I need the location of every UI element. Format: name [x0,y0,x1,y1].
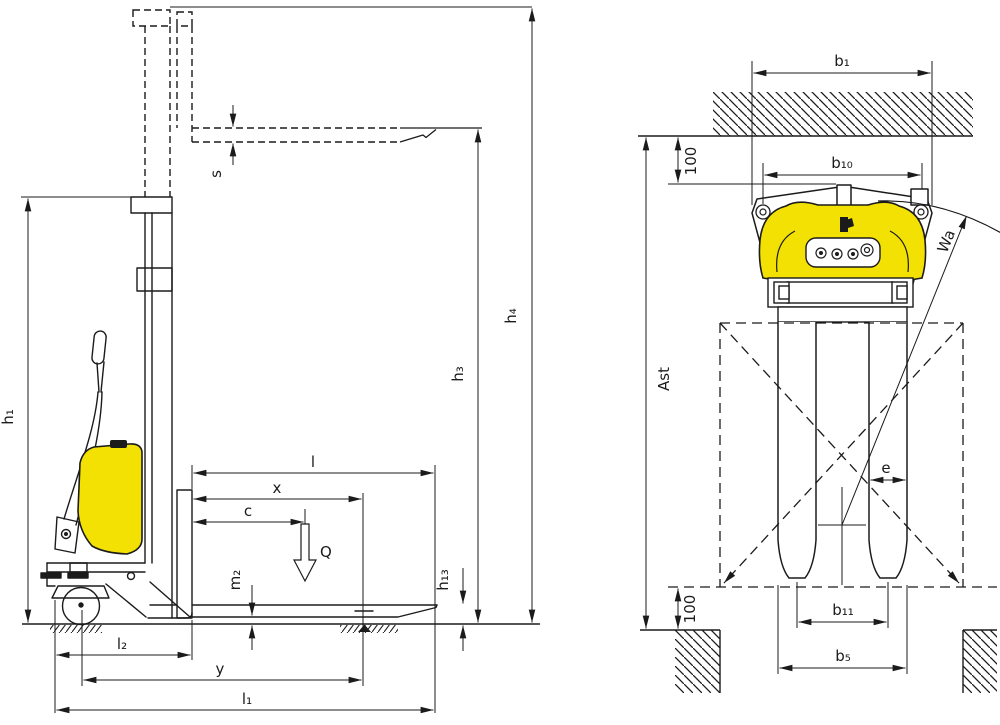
tiller-mount [840,217,848,232]
obstacle-left [640,630,720,693]
mast-top-cap [131,197,172,213]
fork-blade-bottom [192,605,437,617]
pallet-diagonal [720,323,959,583]
label-e: e [881,459,890,477]
motor-cover-yellow [78,444,142,554]
raised-fork-tip [400,128,482,142]
control-panel [806,238,880,267]
fork-carriage-top [768,278,913,322]
label-c: c [244,502,252,520]
label-b11: b₁₁ [832,601,854,619]
tiller-shaft [97,362,104,392]
battery-latch [41,573,61,578]
label-wa: Wa [934,227,959,255]
ground-hatch-left [50,625,102,633]
load-arrow [294,524,316,581]
label-l1: l₁ [242,690,252,708]
tiller-grip [91,330,106,364]
side-dimensions [21,7,532,713]
drawing-canvas: h₁ s h₃ h₄ h₁₃ m₂ Q l x c l₂ y l₁ [0,0,1000,725]
raised-mast-dashed-outline [133,10,400,197]
label-x: x [273,479,282,497]
label-b10: b₁₀ [831,154,853,172]
cover-cap [110,440,127,448]
stacker-side-body [41,197,437,625]
stacker-dimension-drawing: h₁ s h₃ h₄ h₁₃ m₂ Q l x c l₂ y l₁ [0,0,1000,725]
label-b5: b₅ [835,647,851,665]
pallet-diagonal [724,323,963,583]
label-h4: h₄ [502,308,520,324]
label-b1: b₁ [834,52,850,70]
label-h1: h₁ [0,409,17,425]
label-m2: m₂ [226,570,244,591]
raised-mast-cap [133,10,170,26]
top-view: b₁ b₁₀ 100 Ast Wa e 100 b₁₁ b₅ [638,52,1000,693]
label-h13: h₁₃ [434,569,452,591]
label-ast: Ast [655,367,673,391]
mast-collar [137,268,172,291]
label-l2: l₂ [117,635,127,653]
label-y: y [216,660,225,678]
label-clearance-top: 100 [682,147,700,176]
fork-left [778,322,816,578]
label-h3: h₃ [449,366,467,382]
raised-carriage-cap [177,12,192,26]
side-view: h₁ s h₃ h₄ h₁₃ m₂ Q l x c l₂ y l₁ [0,7,540,713]
label-l: l [311,453,315,471]
fork-right [869,322,907,578]
ground [22,624,540,633]
pallet-outline [668,323,997,587]
label-s: s [207,170,225,178]
fork-back-plate [177,490,192,618]
label-clearance-bottom: 100 [681,595,699,624]
drive-wheel-axle [79,603,83,607]
obstacle-right [963,630,997,693]
label-load-q: Q [320,543,332,561]
frame-brace [150,582,190,617]
